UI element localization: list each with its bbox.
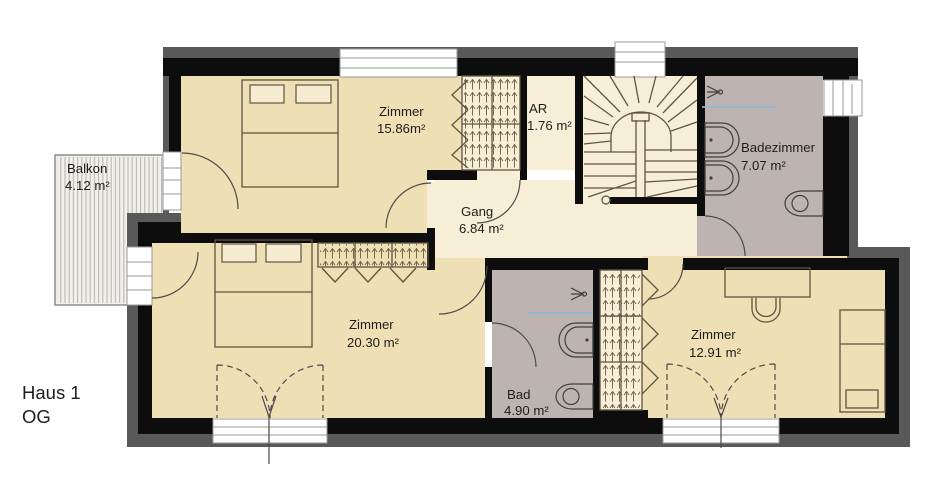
room-zimmer-nw-area: 15.86m²	[377, 121, 426, 136]
pillow	[250, 85, 284, 103]
room-gang-label: Gang	[461, 204, 493, 219]
room-zimmer-sw-area: 20.30 m²	[347, 335, 400, 350]
plan-title: Haus 1 OG	[22, 382, 81, 427]
window-zimmer-nw	[340, 49, 457, 77]
room-badezimmer-area: 7.07 m²	[741, 158, 786, 173]
room-zimmer-sw-floor2	[427, 268, 485, 418]
floor-plan-page: Balkon 4.12 m² Zimmer 15.86m² AR 1.76 m²…	[0, 0, 950, 497]
room-ar-area: 1.76 m²	[527, 118, 572, 133]
floor-plan-drawing: Balkon 4.12 m² Zimmer 15.86m² AR 1.76 m²…	[0, 0, 950, 497]
plan-title-name: Haus 1	[22, 382, 81, 403]
room-zimmer-sw-floor3	[435, 258, 485, 268]
room-bad-label: Bad	[507, 387, 530, 402]
room-zimmer-sw-label: Zimmer	[349, 317, 394, 332]
room-zimmer-nw-label: Zimmer	[379, 104, 424, 119]
wardrobe-hanger-hatch	[320, 244, 426, 266]
pillow	[222, 244, 256, 262]
window-stairwell	[615, 42, 665, 77]
room-balkon-area: 4.12 m²	[65, 178, 110, 193]
wardrobe-nw	[452, 76, 520, 170]
doorway-floor2	[477, 170, 520, 180]
doorway-floor	[427, 182, 435, 228]
room-bad-area: 4.90 m²	[504, 403, 549, 418]
pillow	[266, 244, 301, 262]
room-badezimmer-label: Badezimmer	[741, 140, 816, 155]
room-ar-label: AR	[529, 101, 547, 116]
wardrobe-hanger-hatch	[464, 78, 518, 168]
room-zimmer-se-label: Zimmer	[691, 327, 736, 342]
room-balkon-label: Balkon	[67, 161, 107, 176]
plan-title-floor: OG	[22, 406, 51, 427]
window-badezimmer	[824, 80, 862, 116]
room-zimmer-se-area: 12.91 m²	[689, 345, 742, 360]
pillow	[296, 85, 331, 103]
badezimmer-doorway-floor	[697, 216, 705, 256]
room-zimmer-nw-floor2	[181, 170, 427, 233]
room-gang-area: 6.84 m²	[459, 221, 504, 236]
room-gang-floor	[435, 180, 697, 258]
